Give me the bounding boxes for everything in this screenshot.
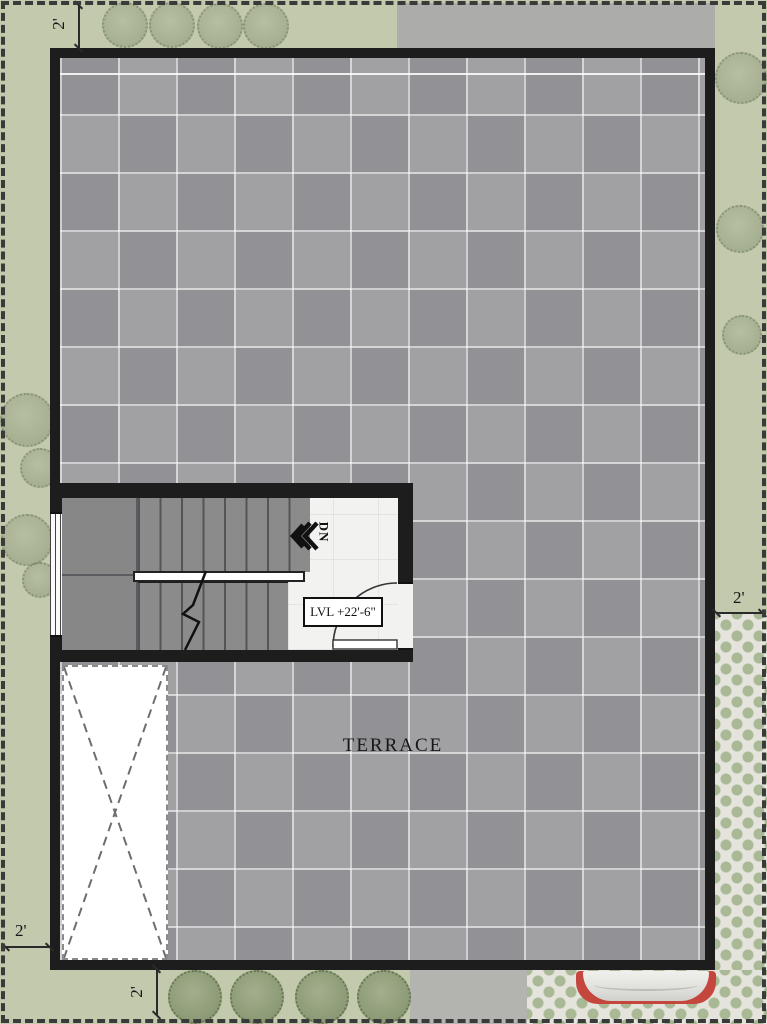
sidewalk-top: [397, 3, 715, 49]
tree-icon: [295, 970, 349, 1024]
door-opening: [398, 582, 413, 650]
stair-treads-upper-run: [138, 498, 310, 572]
tree-icon: [168, 970, 222, 1024]
dimension-text: 2': [733, 588, 745, 608]
tree-icon: [102, 2, 148, 48]
stair-landing-left: [62, 498, 138, 650]
floor-plan-canvas: TERRACE DN LVL +22: [0, 0, 767, 1024]
stair-enclosure: DN LVL +22'-6": [50, 483, 413, 662]
level-tag-text: LVL +22'-6": [310, 604, 376, 620]
tree-icon: [230, 970, 284, 1024]
landing-divider-line: [62, 574, 136, 576]
stair-treads-lower-run: [138, 583, 288, 650]
tree-icon: [149, 2, 195, 48]
car-icon: [576, 971, 716, 1004]
grass-paver-area-right: [715, 614, 767, 1024]
dimension-line: [5, 946, 50, 948]
dimension-line: [716, 612, 763, 614]
dimension-line: [156, 968, 158, 1016]
sidewalk-bottom: [410, 970, 527, 1024]
dn-label: DN: [315, 522, 331, 543]
skylight-x-icon: [64, 667, 166, 958]
tree-icon: [0, 393, 54, 447]
tree-icon: [1, 514, 53, 566]
dimension-text: 2': [49, 18, 69, 30]
tree-icon: [243, 3, 289, 49]
car-windshield-line: [594, 979, 698, 991]
terrace-area-label: TERRACE: [293, 735, 493, 757]
tree-icon: [722, 315, 762, 355]
stair-handrail: [133, 571, 305, 582]
tree-icon: [716, 205, 764, 253]
dimension-line: [78, 4, 80, 49]
tree-icon: [357, 970, 411, 1024]
tree-icon: [197, 3, 243, 49]
level-tag: LVL +22'-6": [303, 597, 383, 627]
dimension-text: 2': [15, 921, 27, 941]
skylight-open-to-below: [62, 665, 168, 960]
dimension-text: 2': [127, 986, 147, 998]
window-icon: [50, 512, 62, 637]
grout-joint-line: [60, 73, 705, 75]
tree-icon: [715, 52, 767, 104]
